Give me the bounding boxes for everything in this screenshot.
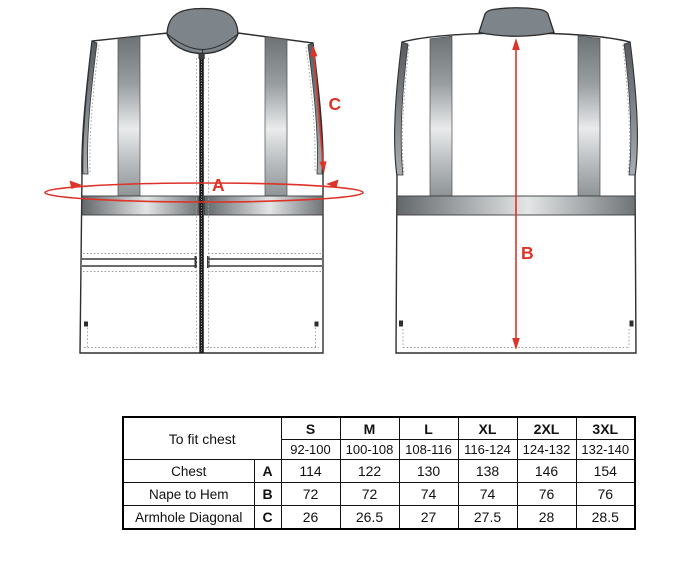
back-collar — [479, 8, 554, 36]
cell-value: 76 — [517, 483, 576, 506]
size-header-row: To fit chest S M L XL 2XL 3XL — [123, 417, 635, 440]
cell-value: 74 — [399, 483, 458, 506]
row-label-armhole-diagonal: Armhole Diagonal — [123, 506, 254, 530]
cell-value: 28.5 — [576, 506, 635, 530]
cell-value: 27 — [399, 506, 458, 530]
table-row-chest: Chest A 114 122 130 138 146 154 — [123, 460, 635, 483]
reflective-band-front-left — [82, 196, 199, 215]
vest-diagram: A C B — [0, 0, 696, 400]
fit-range-3xl: 132-140 — [576, 440, 635, 460]
size-col-header-2xl: 2XL — [517, 417, 576, 440]
cell-value: 114 — [281, 460, 340, 483]
fit-range-xl: 116-124 — [458, 440, 517, 460]
measure-letter-c: C — [254, 506, 281, 530]
measure-b-label: B — [521, 243, 534, 263]
measure-letter-a: A — [254, 460, 281, 483]
reflective-band-front-right — [205, 196, 324, 215]
cell-value: 154 — [576, 460, 635, 483]
fit-chest-header: To fit chest — [123, 417, 281, 460]
measure-c-label: C — [329, 94, 342, 114]
row-label-chest: Chest — [123, 460, 254, 483]
size-col-header-l: L — [399, 417, 458, 440]
cell-value: 130 — [399, 460, 458, 483]
measure-letter-b: B — [254, 483, 281, 506]
size-col-header-xl: XL — [458, 417, 517, 440]
cell-value: 27.5 — [458, 506, 517, 530]
table-row-armhole-diagonal: Armhole Diagonal C 26 26.5 27 27.5 28 28… — [123, 506, 635, 530]
cell-value: 74 — [458, 483, 517, 506]
row-label-nape-to-hem: Nape to Hem — [123, 483, 254, 506]
table-row-nape-to-hem: Nape to Hem B 72 72 74 74 76 76 — [123, 483, 635, 506]
reflective-stripe-front-left — [118, 36, 140, 196]
fit-range-s: 92-100 — [281, 440, 340, 460]
cell-value: 76 — [576, 483, 635, 506]
size-chart-table: To fit chest S M L XL 2XL 3XL 92-100 100… — [122, 416, 636, 530]
cell-value: 26 — [281, 506, 340, 530]
reflective-stripe-back-left — [430, 36, 452, 196]
cell-value: 72 — [281, 483, 340, 506]
size-col-header-3xl: 3XL — [576, 417, 635, 440]
measure-a-left-arrowhead — [70, 181, 83, 190]
cell-value: 146 — [517, 460, 576, 483]
size-col-header-s: S — [281, 417, 340, 440]
fit-range-l: 108-116 — [399, 440, 458, 460]
cell-value: 138 — [458, 460, 517, 483]
measure-a-label: A — [212, 175, 225, 195]
front-collar — [167, 9, 238, 54]
reflective-stripe-front-right — [265, 37, 287, 196]
reflective-stripe-back-right — [578, 36, 600, 196]
cell-value: 72 — [340, 483, 399, 506]
size-col-header-m: M — [340, 417, 399, 440]
cell-value: 26.5 — [340, 506, 399, 530]
fit-range-2xl: 124-132 — [517, 440, 576, 460]
size-chart-page: A C B To fit chest S — [0, 0, 696, 567]
front-vest-drawing — [80, 9, 323, 354]
cell-value: 122 — [340, 460, 399, 483]
fit-range-m: 100-108 — [340, 440, 399, 460]
cell-value: 28 — [517, 506, 576, 530]
